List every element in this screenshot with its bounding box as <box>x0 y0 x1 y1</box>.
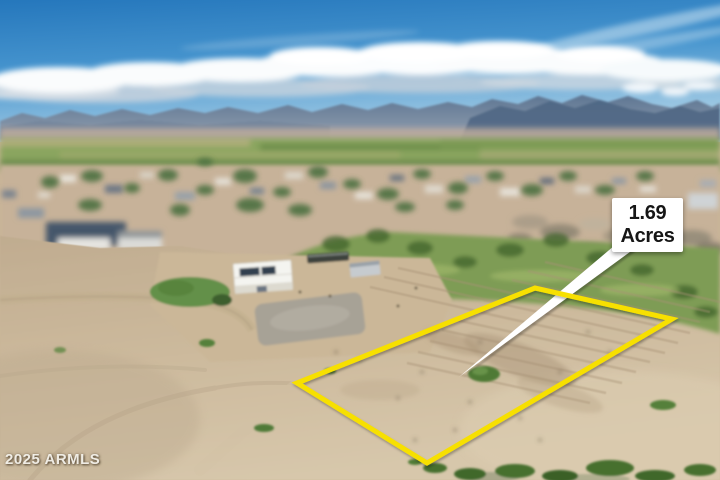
aerial-listing-photo: 1.69 Acres 2025 ARMLS <box>0 0 720 480</box>
armls-watermark: 2025 ARMLS <box>5 451 100 468</box>
acreage-label: 1.69 Acres <box>612 198 683 252</box>
solar-panels <box>239 267 260 276</box>
acreage-value: 1.69 <box>629 202 667 225</box>
barn-building <box>233 260 293 294</box>
acreage-unit: Acres <box>620 225 674 248</box>
